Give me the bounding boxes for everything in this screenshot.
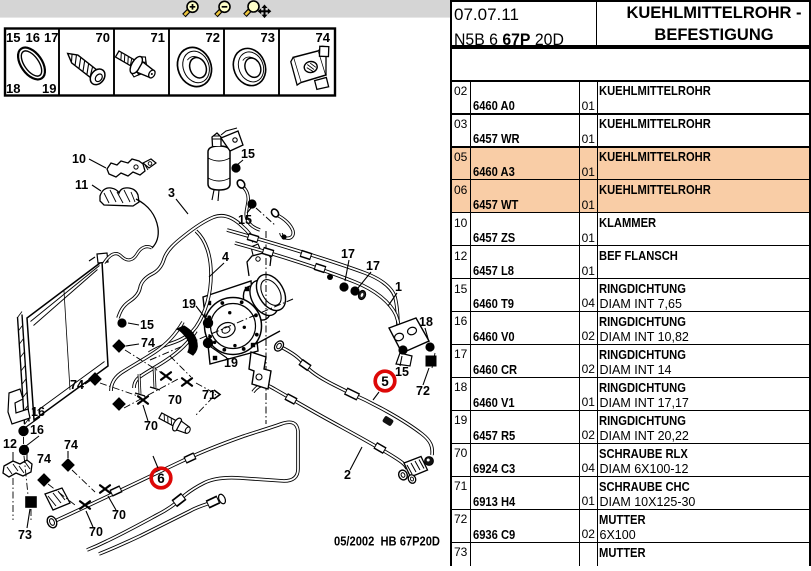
svg-text:19: 19 [182, 297, 196, 311]
svg-text:6: 6 [157, 471, 165, 486]
svg-text:70: 70 [144, 419, 158, 433]
svg-text:74: 74 [37, 452, 51, 466]
svg-text:74: 74 [141, 336, 155, 350]
svg-text:15: 15 [140, 318, 154, 332]
svg-text:18: 18 [419, 315, 433, 329]
svg-text:15: 15 [238, 213, 252, 227]
svg-text:16: 16 [31, 405, 45, 419]
svg-text:17: 17 [341, 247, 355, 261]
svg-text:70: 70 [168, 393, 182, 407]
svg-text:19: 19 [42, 81, 56, 96]
svg-text:74: 74 [70, 378, 84, 392]
svg-text:16: 16 [26, 30, 40, 45]
svg-text:17: 17 [366, 259, 380, 273]
svg-text:12: 12 [3, 437, 17, 451]
svg-text:70: 70 [96, 30, 110, 45]
svg-text:73: 73 [261, 30, 275, 45]
svg-text:18: 18 [6, 81, 20, 96]
svg-text:16: 16 [30, 423, 44, 437]
svg-text:71: 71 [202, 388, 216, 402]
svg-text:15: 15 [6, 30, 20, 45]
svg-text:73: 73 [18, 528, 32, 542]
svg-text:10: 10 [72, 152, 86, 166]
svg-text:72: 72 [206, 30, 220, 45]
svg-text:70: 70 [89, 525, 103, 539]
svg-text:74: 74 [316, 30, 331, 45]
svg-text:05/2002 HB 67P20D: 05/2002 HB 67P20D [334, 535, 440, 549]
svg-text:72: 72 [416, 384, 430, 398]
svg-text:15: 15 [395, 365, 409, 379]
svg-text:3: 3 [168, 186, 175, 200]
svg-text:2: 2 [344, 468, 351, 482]
svg-text:19: 19 [224, 356, 238, 370]
svg-text:1: 1 [395, 280, 402, 294]
svg-text:17: 17 [44, 30, 58, 45]
svg-text:15: 15 [241, 147, 255, 161]
svg-text:5: 5 [381, 374, 389, 389]
svg-text:4: 4 [222, 250, 229, 264]
svg-text:71: 71 [151, 30, 165, 45]
svg-text:70: 70 [112, 508, 126, 522]
svg-text:74: 74 [64, 438, 78, 452]
svg-text:11: 11 [75, 178, 88, 192]
